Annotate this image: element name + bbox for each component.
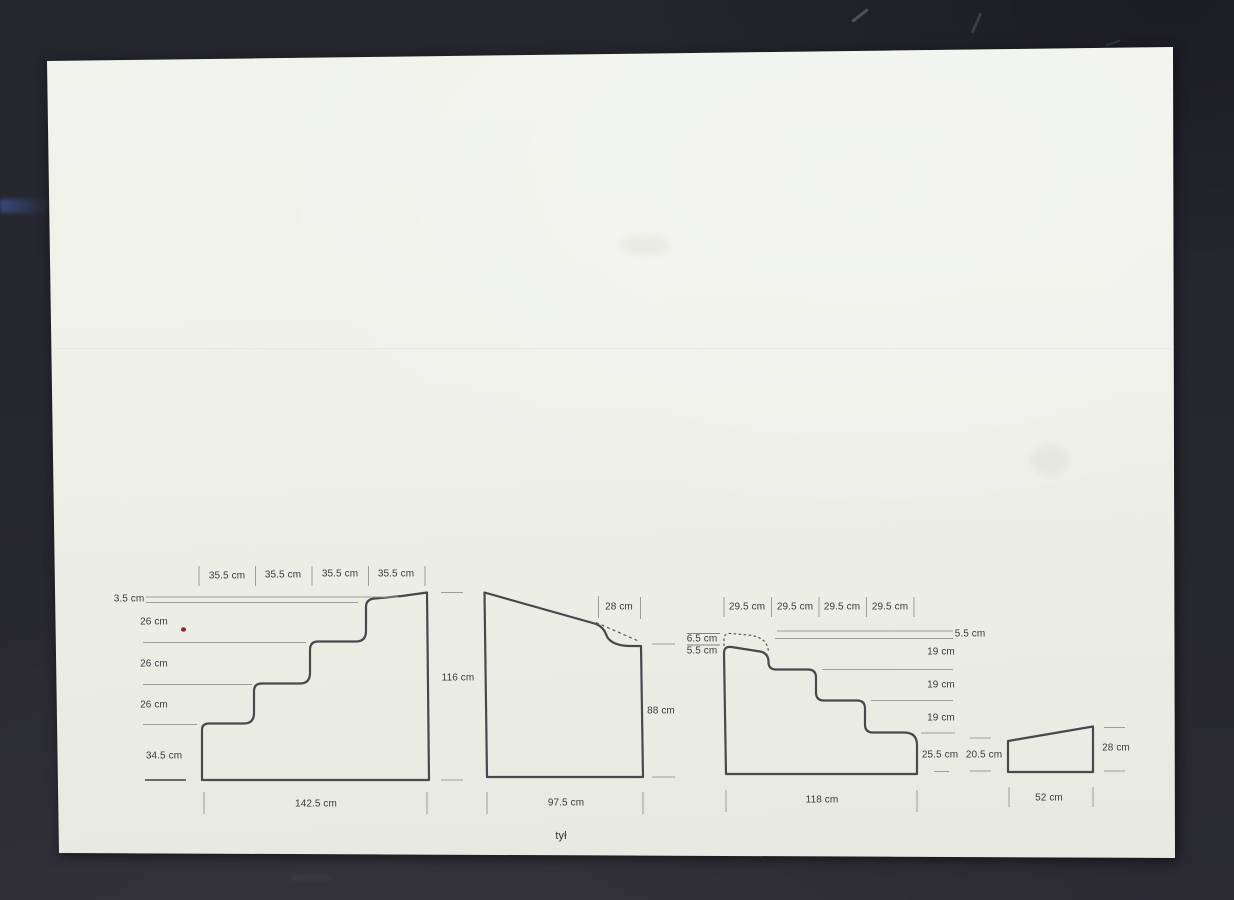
p2-right-dim: 88 cm (647, 706, 675, 717)
p1-top-dim-4: 35.5 cm (378, 569, 414, 580)
p3-top-dim-2: 29.5 cm (777, 602, 813, 613)
back-side-label: tył (555, 830, 566, 842)
p1-left-dim-1: 3.5 cm (114, 594, 145, 605)
p3-top-dim-4: 29.5 cm (872, 602, 908, 613)
p3-left-dim-1: 6.5 cm (687, 634, 718, 645)
p3-right-dim-5: 25.5 cm (922, 750, 958, 761)
p1-left-dim-2: 26 cm (140, 617, 168, 628)
p2-top-dim: 28 cm (605, 602, 633, 613)
p1-bottom-dim: 142.5 cm (295, 799, 337, 810)
red-dot-mark (181, 627, 186, 631)
p1-right-dim: 116 cm (442, 673, 475, 684)
large-wedge-dashed-cut (596, 623, 640, 642)
p1-left-dim-4: 26 cm (140, 700, 168, 711)
small-staircase-outline (724, 647, 917, 774)
p4-left-dim: 20.5 cm (966, 750, 1002, 761)
p4-right-dim: 28 cm (1102, 743, 1130, 754)
drawing-sheet: 35.5 cm 35.5 cm 35.5 cm 35.5 cm 3.5 cm 2… (0, 0, 1234, 900)
p1-left-dim-5: 34.5 cm (146, 751, 182, 762)
p1-top-dim-3: 35.5 cm (322, 569, 358, 580)
p2-bottom-dim: 97.5 cm (548, 798, 584, 809)
p3-top-dim-1: 29.5 cm (729, 602, 765, 613)
p4-bottom-dim: 52 cm (1035, 793, 1063, 804)
small-staircase-dimension-lines (724, 597, 955, 812)
p1-top-dim-1: 35.5 cm (209, 571, 245, 582)
large-staircase-outline (202, 593, 429, 781)
p3-left-dim-2: 5.5 cm (687, 646, 718, 657)
diagram-linework (0, 0, 1234, 900)
p1-top-dim-2: 35.5 cm (265, 570, 301, 581)
p1-left-dim-3: 26 cm (140, 659, 168, 670)
p3-right-dim-3: 19 cm (927, 680, 955, 691)
p3-top-dim-3: 29.5 cm (824, 602, 860, 613)
large-wedge-outline (485, 593, 644, 778)
large-staircase-dimension-lines (143, 566, 463, 814)
p3-right-dim-4: 19 cm (927, 713, 955, 724)
p3-right-dim-2: 19 cm (927, 647, 955, 658)
p3-right-dim-1: 5.5 cm (955, 629, 986, 640)
small-wedge-outline (1008, 727, 1093, 773)
p3-bottom-dim: 118 cm (806, 795, 839, 806)
